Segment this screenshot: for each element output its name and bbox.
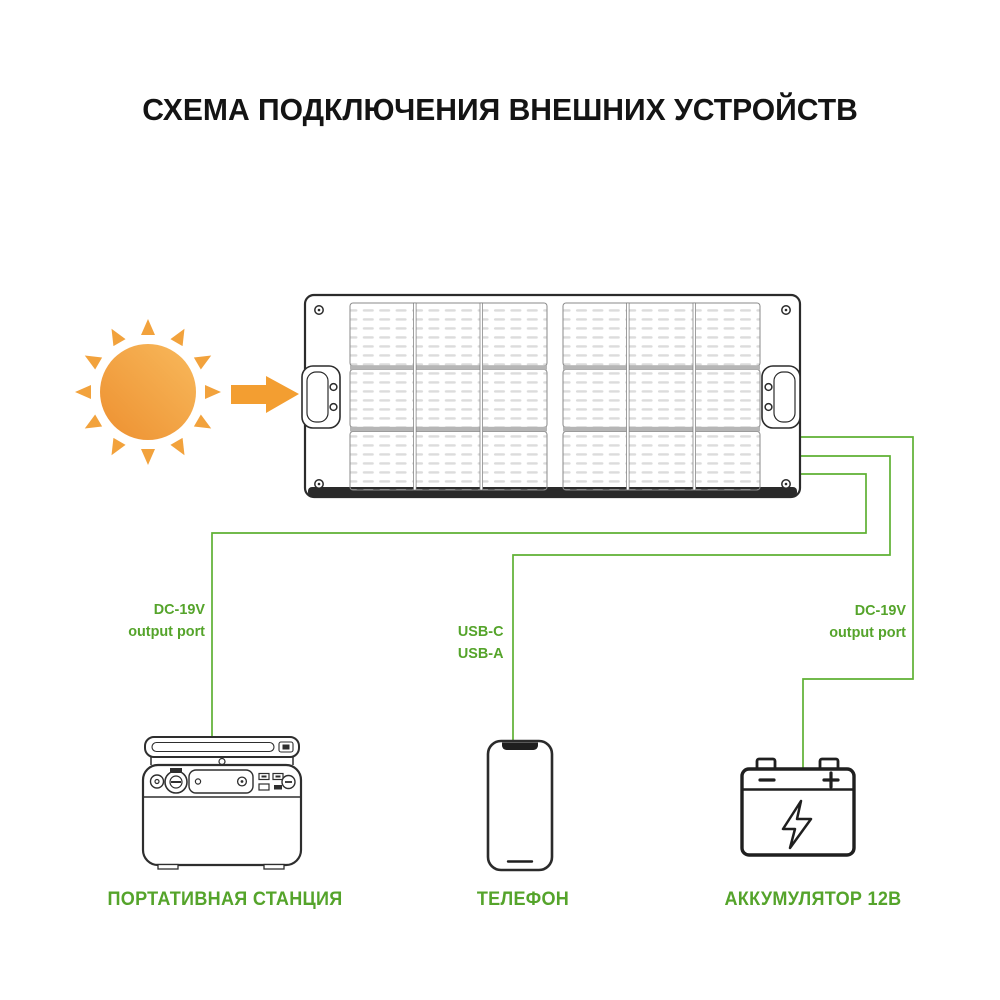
port-label-phone-line2: USB-A	[457, 643, 503, 665]
arrow-right-icon	[231, 376, 299, 413]
port-label-battery-line2: output port	[829, 622, 906, 644]
port-label-battery: DC-19V output port	[829, 600, 906, 644]
wire-panel-to-station	[212, 474, 866, 738]
port-label-station-line1: DC-19V	[128, 599, 205, 621]
sun-icon	[75, 319, 221, 465]
port-label-station-line2: output port	[128, 621, 205, 643]
port-label-battery-line1: DC-19V	[829, 600, 906, 622]
phone-icon	[488, 741, 552, 870]
diagram	[0, 0, 1000, 1000]
device-label-station: ПОРТАТИВНАЯ СТАНЦИЯ	[83, 889, 368, 911]
wire-panel-to-phone	[513, 456, 890, 742]
power-station-icon	[143, 737, 301, 869]
device-label-phone: ТЕЛЕФОН	[381, 889, 666, 911]
panel-handle-right	[762, 366, 800, 428]
port-label-station: DC-19V output port	[128, 599, 205, 643]
solar-panel	[302, 295, 800, 497]
panel-handle-left	[302, 366, 340, 428]
device-label-battery: АККУМУЛЯТОР 12В	[671, 889, 956, 911]
port-label-phone-line1: USB-C	[457, 621, 503, 643]
battery-icon	[742, 759, 854, 855]
port-label-phone: USB-C USB-A	[457, 621, 503, 665]
